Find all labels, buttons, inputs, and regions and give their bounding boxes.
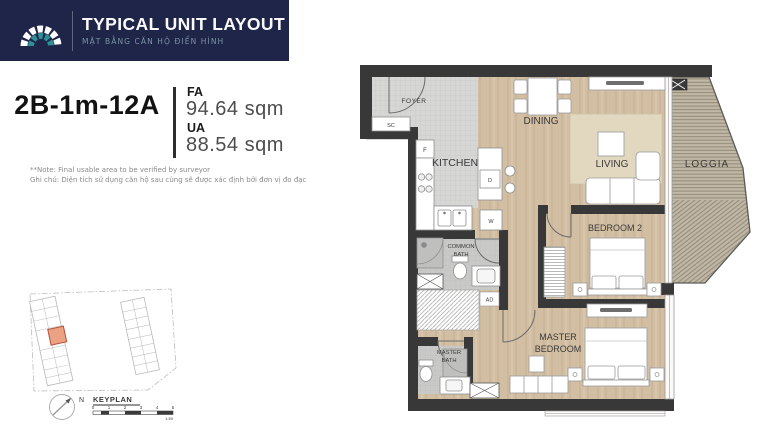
brochure-page: TYPICAL UNIT LAYOUT MẶT BẰNG CĂN HỘ ĐIỂN… <box>0 0 768 426</box>
stove-burner-icon <box>418 186 424 192</box>
sofa-chaise <box>636 152 660 180</box>
tv-icon <box>600 308 632 312</box>
tv-icon <box>606 81 644 85</box>
pillow <box>588 366 615 379</box>
north-label: N <box>79 397 84 404</box>
master-bedroom-label-2: BEDROOM <box>535 344 582 354</box>
bedroom2-label: BEDROOM 2 <box>588 223 642 233</box>
svg-text:3: 3 <box>140 405 143 410</box>
dishwasher-label: D <box>488 178 492 184</box>
fa-value: 94.64 sqm <box>186 98 284 121</box>
keyplan-left-wing <box>30 296 75 386</box>
living-label: LIVING <box>596 159 629 170</box>
shoe-cabinet-label: SC <box>387 123 395 129</box>
keyplan-title: KEYPLAN <box>93 395 132 404</box>
common-bath-label-2: BATH <box>453 252 468 258</box>
scale-bar: 0 1 2 3 4 5 1:50 <box>92 405 175 421</box>
pillow <box>619 276 643 289</box>
toilet-bowl <box>454 263 467 279</box>
bar-stool <box>505 183 515 193</box>
keyplan: N KEYPLAN 0 1 2 3 4 5 1:50 <box>10 275 210 426</box>
dining-chair <box>558 99 571 113</box>
info-divider <box>173 87 176 158</box>
nightstand <box>647 283 661 296</box>
dresser <box>510 376 568 393</box>
footnote-line2: Ghi chú: Diện tích sử dụng căn hộ sau cù… <box>30 176 306 186</box>
wall-top <box>360 65 712 77</box>
keyplan-highlight-unit <box>48 326 67 345</box>
pillow <box>618 366 645 379</box>
stove-burner-icon <box>426 186 432 192</box>
master-bedroom-label-1: MASTER <box>539 332 577 342</box>
page-title: TYPICAL UNIT LAYOUT <box>82 15 285 34</box>
nightstand <box>568 368 582 381</box>
foyer-label: FOYER <box>402 98 427 105</box>
footnote-line1: **Note: Final usable area to be verified… <box>30 166 306 176</box>
svg-text:4: 4 <box>156 405 159 410</box>
master-bath-label-1: MASTER <box>437 350 461 356</box>
nightstand <box>650 368 664 381</box>
svg-text:2: 2 <box>124 405 127 410</box>
toilet-tank <box>419 360 433 366</box>
floorplan: FOYER KITCHEN DINING LIVING LOGGIA BEDRO… <box>352 52 768 426</box>
nightstand <box>573 283 587 296</box>
unit-code: 2B-1m-12A <box>6 90 168 121</box>
loggia-label: LOGGIA <box>685 159 729 170</box>
loggia-deck <box>668 77 750 283</box>
ua-label: UA <box>187 121 205 135</box>
stove-burner-icon <box>426 174 432 180</box>
master-bath-label-2: BATH <box>441 358 456 364</box>
sofa <box>586 178 660 204</box>
stove-burner-icon <box>418 174 424 180</box>
bar-stool <box>505 166 515 176</box>
page-subtitle: MẶT BẰNG CĂN HỘ ĐIỂN HÌNH <box>82 37 285 46</box>
wall-bottom <box>408 399 674 411</box>
fridge-label: F <box>423 148 427 154</box>
dining-table <box>528 78 557 115</box>
bedroom2-furniture <box>544 238 661 297</box>
wall-left-upper <box>360 65 372 133</box>
ua-value: 88.54 sqm <box>186 134 284 157</box>
cabinet <box>529 356 544 372</box>
dining-chair <box>514 99 527 113</box>
svg-text:1: 1 <box>108 405 111 410</box>
wall-master-bath-top <box>408 337 438 346</box>
kitchen-label: KITCHEN <box>432 157 478 169</box>
header-banner: TYPICAL UNIT LAYOUT MẶT BẰNG CĂN HỘ ĐIỂN… <box>0 0 289 61</box>
dining-chair <box>514 80 527 94</box>
toilet-bowl <box>420 367 432 382</box>
footnote: **Note: Final usable area to be verified… <box>30 166 306 185</box>
wall-bedroom2-top <box>571 205 672 214</box>
dining-chair <box>558 80 571 94</box>
scale-ratio: 1:50 <box>165 416 174 421</box>
svg-text:0: 0 <box>92 405 95 410</box>
duct-label: AD <box>486 298 494 304</box>
keyplan-title-underline <box>93 405 140 406</box>
washer-label: W <box>488 219 494 225</box>
svg-text:5: 5 <box>172 405 175 410</box>
headboard <box>588 289 647 295</box>
coffee-table <box>598 132 624 156</box>
fa-label: FA <box>187 85 203 99</box>
arch-logo-icon <box>18 9 64 53</box>
dining-label: DINING <box>524 116 559 127</box>
header-divider <box>72 11 73 51</box>
pillow <box>592 276 616 289</box>
north-compass-icon: N <box>50 395 85 420</box>
common-bath-label-1: COMMON <box>447 244 474 250</box>
headboard <box>583 380 649 386</box>
keyplan-right-wing <box>121 297 160 374</box>
